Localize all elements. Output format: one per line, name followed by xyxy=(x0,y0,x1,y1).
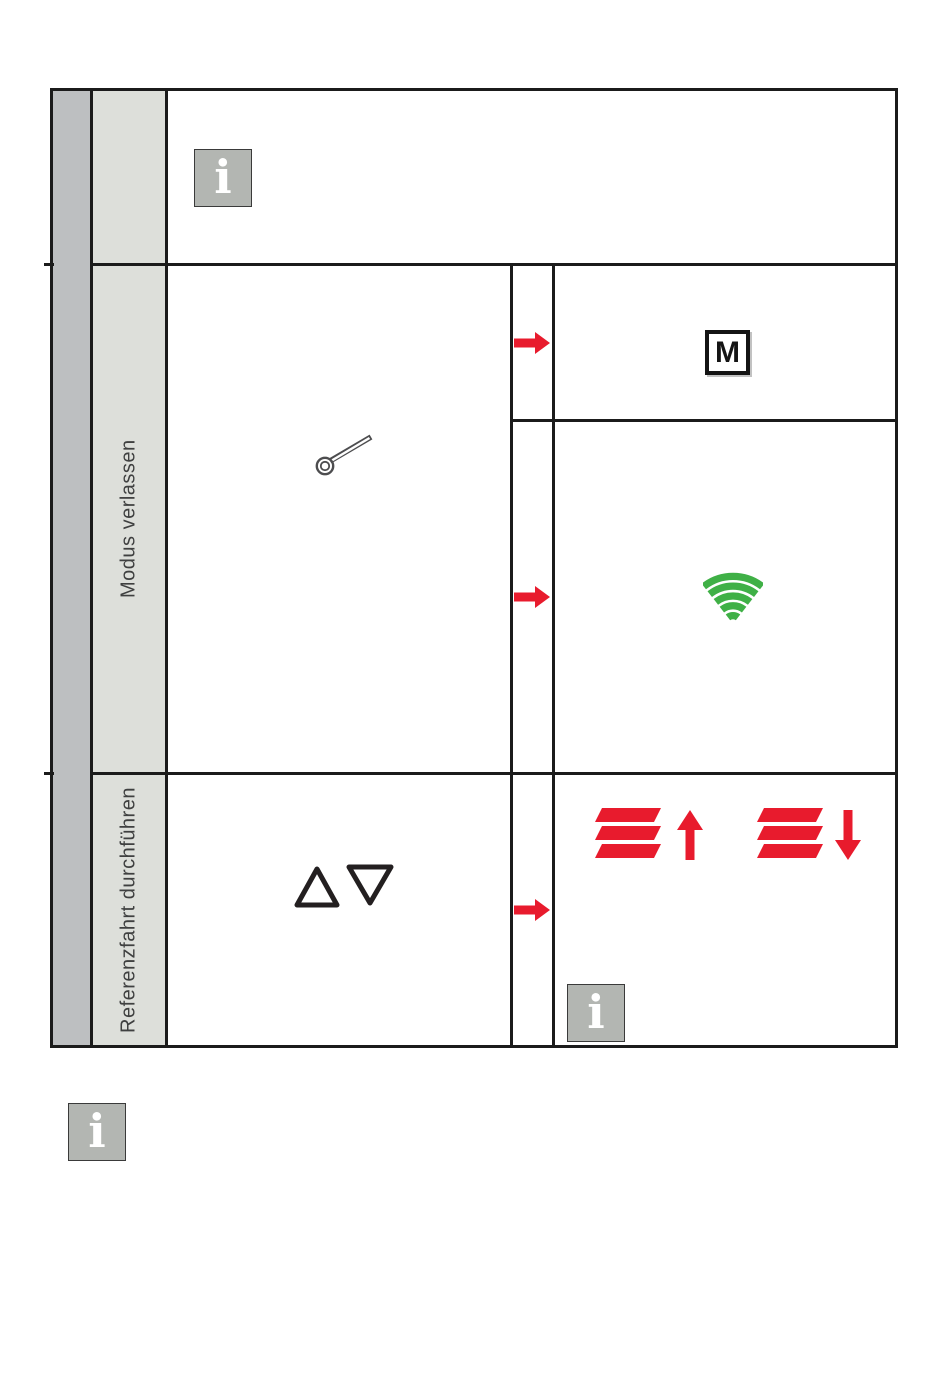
info-icon: i xyxy=(194,149,252,207)
shutter-slats-down-icon xyxy=(757,808,861,860)
table-border-right xyxy=(895,88,898,1048)
row-divider-2 xyxy=(90,772,898,775)
manual-mode-symbol: M xyxy=(705,330,750,375)
divider-arrowcol-result xyxy=(552,263,555,1048)
info-icon-footer: i xyxy=(68,1103,126,1161)
shutter-slats-up-icon xyxy=(595,808,703,860)
red-right-arrow-icon xyxy=(514,586,550,608)
divider-main-arrowcol xyxy=(510,263,513,1048)
triangle-down-button xyxy=(349,867,391,903)
sidebar-dark-column xyxy=(53,91,90,1045)
instruction-table: i Modus verlassen M Referenzfahrt durchf… xyxy=(50,88,898,1048)
shutter-move-icons xyxy=(593,808,873,870)
left-edge-tick-2 xyxy=(44,772,54,775)
subrow-divider xyxy=(510,419,898,422)
reset-pin-icon xyxy=(305,428,435,483)
info-icon: i xyxy=(567,984,625,1042)
left-edge-tick-1 xyxy=(44,263,54,266)
radio-signal-icon xyxy=(703,566,763,628)
label-cell-note-row xyxy=(93,91,165,263)
table-border-bottom xyxy=(50,1045,898,1048)
red-right-arrow-icon xyxy=(514,899,550,921)
red-right-arrow-icon xyxy=(514,332,550,354)
divider-light-main xyxy=(165,88,168,1048)
row-divider-1 xyxy=(90,263,898,266)
table-border-top xyxy=(50,88,898,91)
triangle-up-button xyxy=(297,869,337,905)
table-border-left xyxy=(50,88,53,1048)
manual-page: { "page_type": "instruction-manual-table… xyxy=(0,0,950,1378)
row-label-modus-verlassen: Modus verlassen xyxy=(93,266,165,772)
triangle-up-down-buttons-icon xyxy=(290,860,400,910)
row-label-referenzfahrt: Referenzfahrt durchführen xyxy=(93,775,165,1045)
